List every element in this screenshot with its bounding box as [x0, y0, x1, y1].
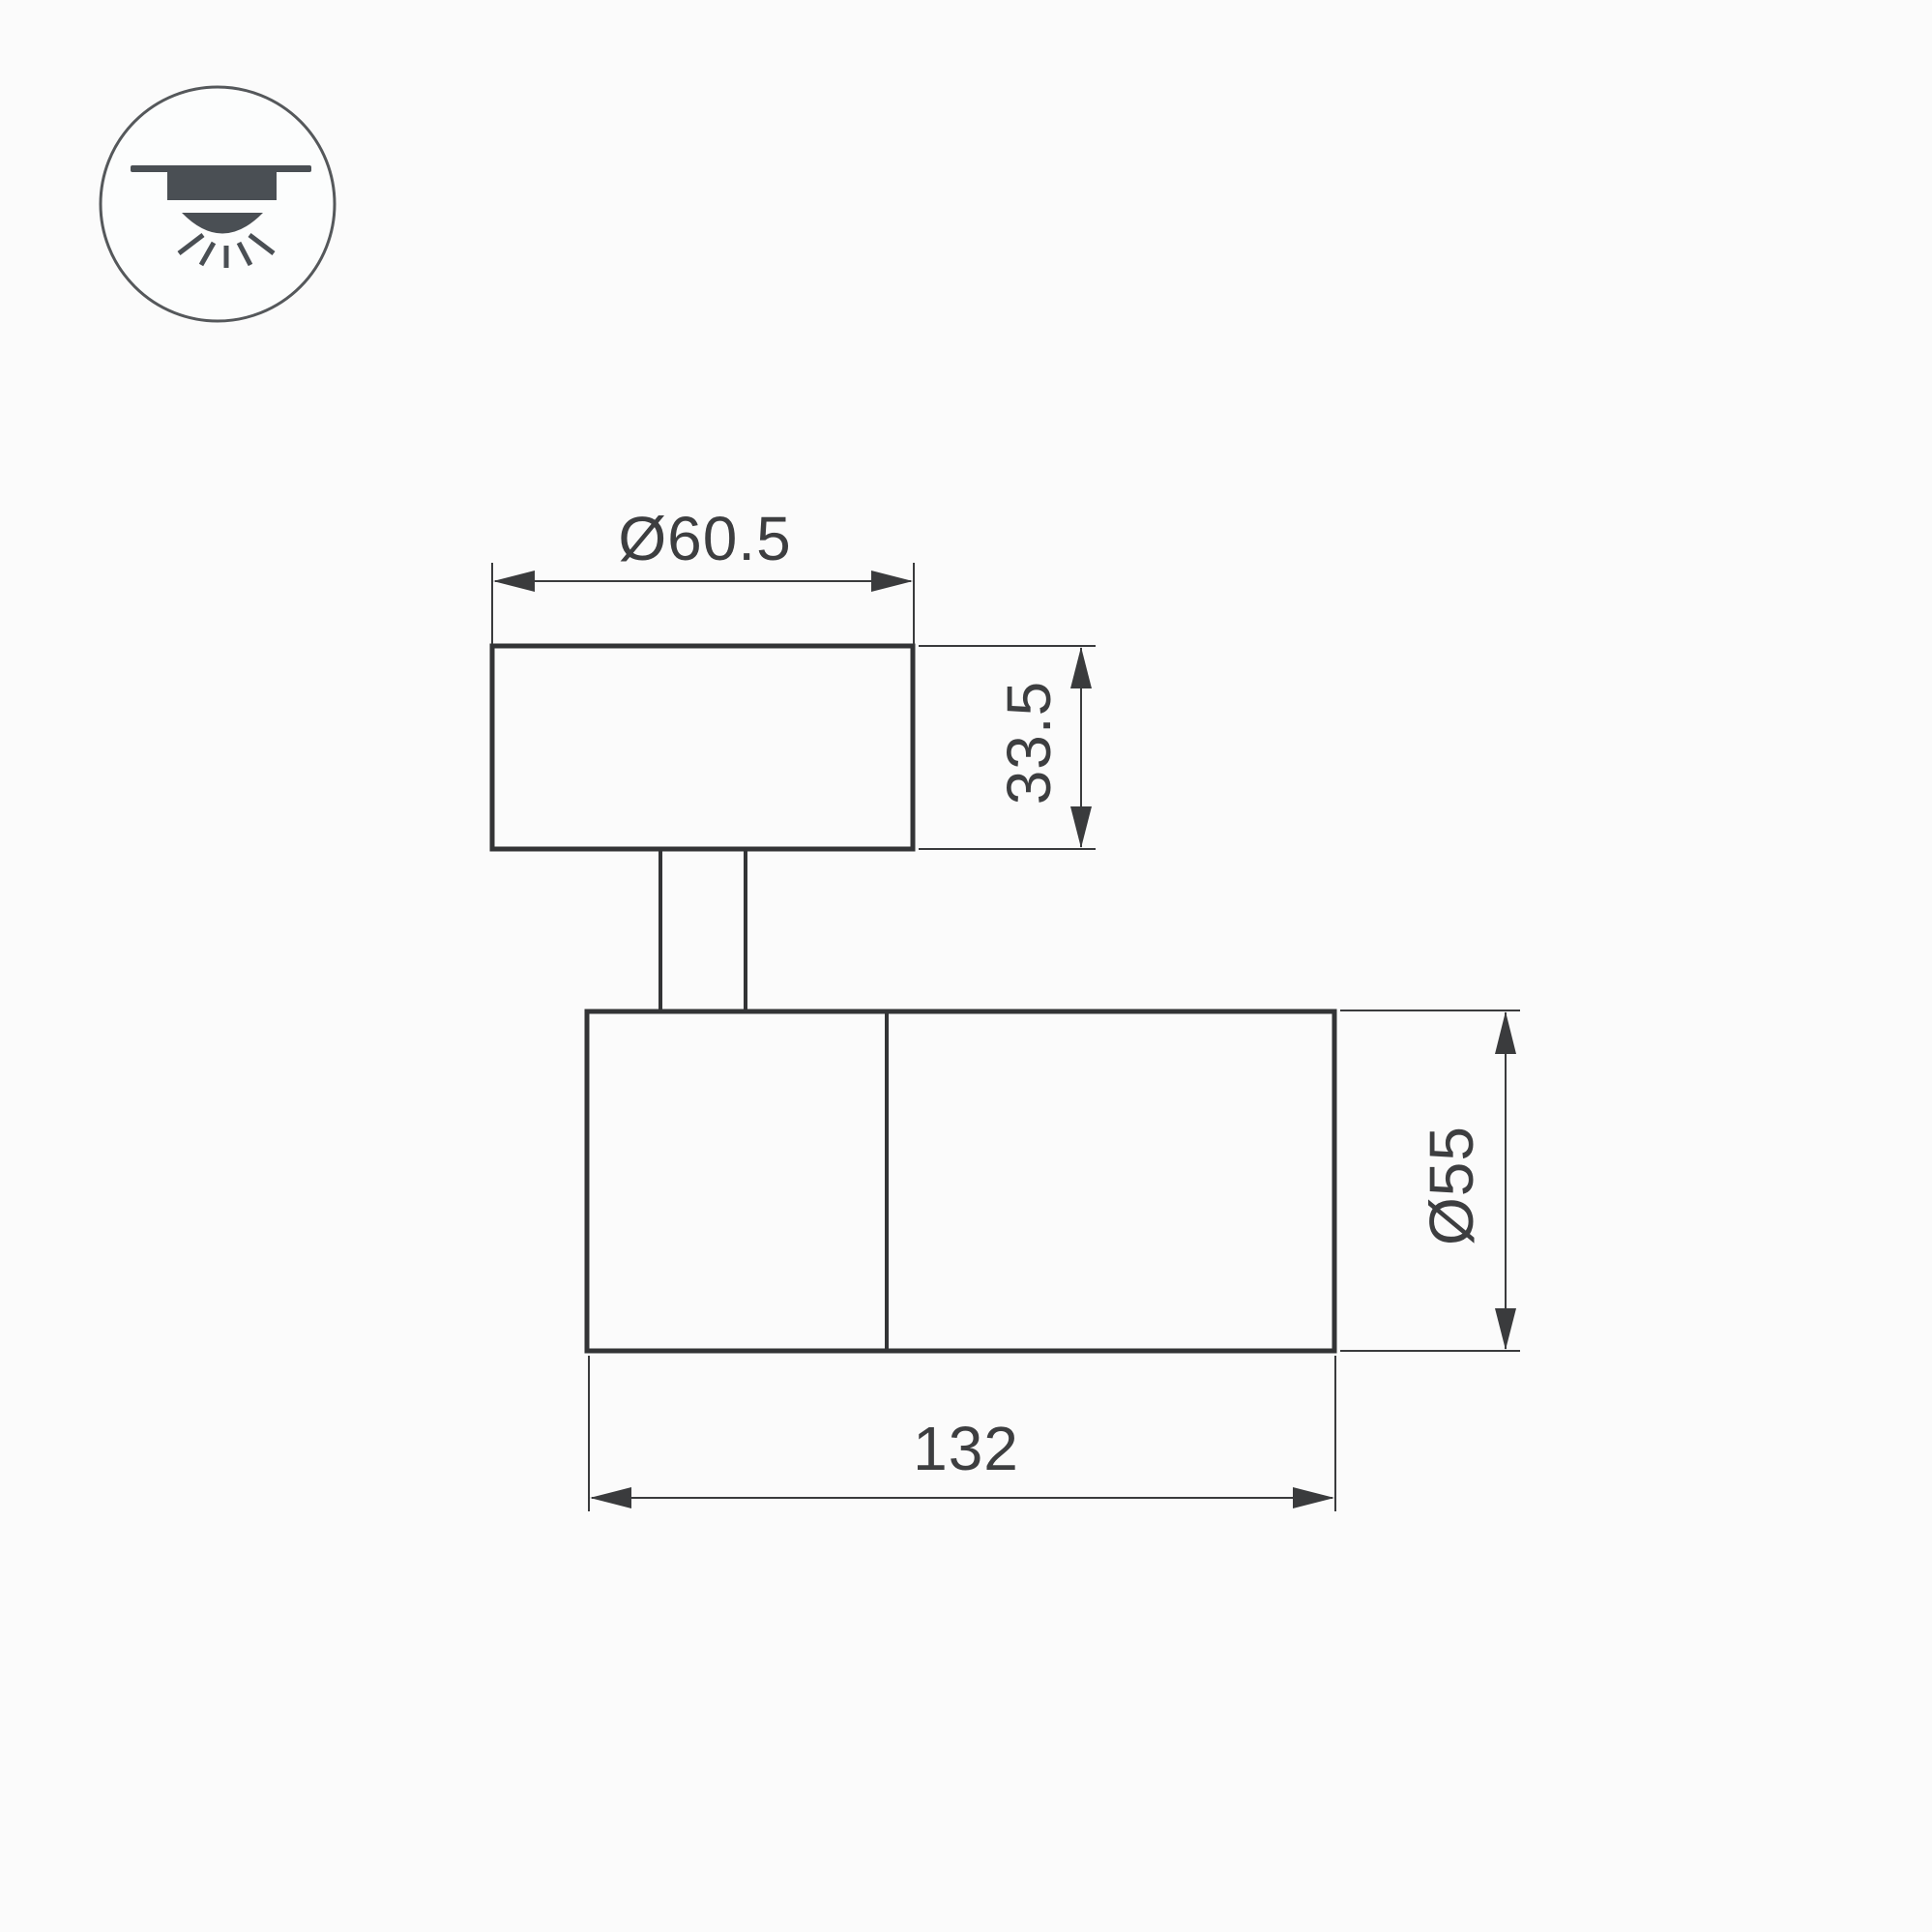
dimension-mount-diameter: Ø60.5 — [492, 504, 914, 644]
dim-label-body-length: 132 — [913, 1414, 1019, 1483]
icon-fixture-body — [167, 165, 277, 200]
dimension-body-length: 132 — [589, 1356, 1335, 1511]
arrowhead-down — [1495, 1308, 1516, 1350]
luminaire-outline — [492, 646, 1334, 1351]
dimension-mount-height: 33.5 — [919, 646, 1096, 849]
arrowhead-up — [1070, 647, 1092, 688]
dim-label-mount-diameter: Ø60.5 — [618, 504, 791, 573]
arrowhead-left — [493, 571, 535, 592]
dim-label-body-diameter: Ø55 — [1417, 1126, 1486, 1245]
luminaire-dimension-drawing: Ø60.5 33.5 Ø55 132 — [0, 0, 1932, 1932]
drawing-sheet: Ø60.5 33.5 Ø55 132 — [0, 0, 1932, 1932]
arrowhead-right — [871, 571, 913, 592]
arrowhead-up — [1495, 1011, 1516, 1054]
arrowhead-right — [1293, 1487, 1334, 1508]
lamp-body-outline — [587, 1011, 1334, 1351]
dimension-body-diameter: Ø55 — [1340, 1010, 1520, 1351]
dim-label-mount-height: 33.5 — [994, 681, 1064, 805]
icon-circle-border — [101, 87, 335, 321]
arrowhead-down — [1070, 806, 1092, 848]
mount-cap-outline — [492, 646, 913, 849]
arrowhead-left — [590, 1487, 631, 1508]
surface-mount-downlight-icon — [101, 87, 335, 321]
